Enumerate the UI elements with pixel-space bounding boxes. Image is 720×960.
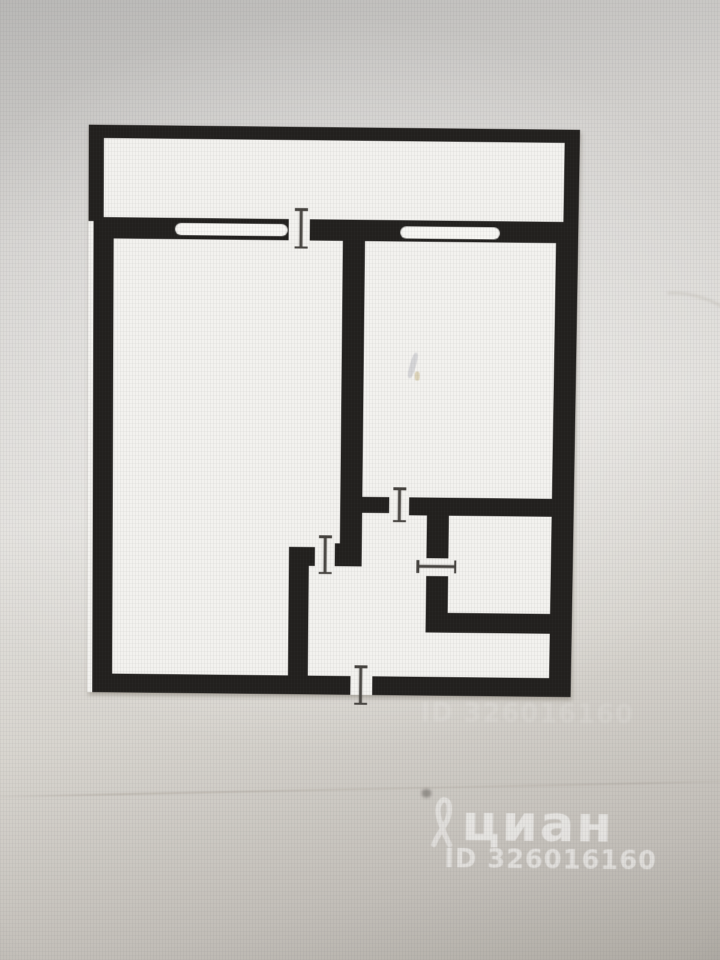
watermark-id-faint: ID 326016160 bbox=[420, 700, 634, 728]
living-room-door-tick bbox=[318, 536, 331, 573]
kitchen-door-tick bbox=[392, 488, 405, 521]
bathroom-door-tick bbox=[417, 560, 455, 573]
entrance-door-tick bbox=[354, 666, 367, 704]
listing-image: циан ID 326016160 ID 326016160 bbox=[0, 0, 720, 956]
floorplan-photo: циан ID 326016160 ID 326016160 bbox=[0, 0, 720, 960]
watermark-id: ID 326016160 bbox=[444, 847, 657, 875]
balcony-door-tick bbox=[294, 209, 307, 248]
watermark-brand: циан bbox=[461, 798, 614, 850]
cian-ribbon-icon bbox=[427, 794, 457, 849]
